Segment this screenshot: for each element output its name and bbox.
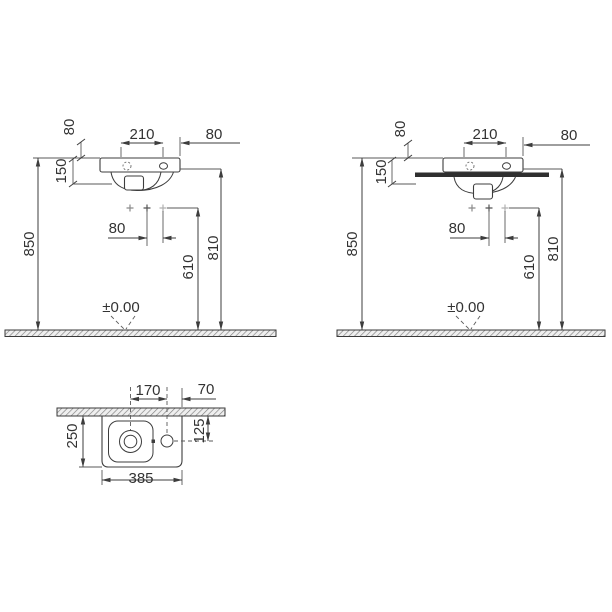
dim-span-label: 210 [472, 126, 497, 143]
basin-rim-profile [443, 158, 523, 172]
basin-rim-profile [100, 158, 180, 172]
spec-drawing-page: 80 150 850 610 810 210 80 80 ±0.00 [0, 0, 612, 612]
dim-upper-clearance-label: 80 [61, 119, 78, 136]
dim-tap-to-edge-label: 70 [198, 381, 215, 398]
floor-hatch-left [5, 330, 276, 337]
dim-basin-height-label: 150 [53, 158, 70, 183]
fixing-cross-icon [127, 205, 134, 212]
countertop-bar [415, 173, 549, 178]
drain-trap [474, 184, 493, 199]
dim-width-label: 385 [128, 470, 153, 487]
floor-hatch-right [337, 330, 605, 337]
plan-view: 170 70 250 125 385 [57, 381, 225, 487]
front-elevation-countertop: 80 150 850 610 810 210 80 80 ±0.00 [337, 121, 605, 337]
dim-fixing-height-label: 810 [205, 235, 222, 260]
dim-hole-spacing-label: 80 [109, 220, 126, 237]
dim-upper-clearance-label: 80 [392, 121, 409, 138]
dim-basin-height-label: 150 [373, 159, 390, 184]
fixing-cross-icon [160, 205, 167, 212]
overflow-mark [152, 440, 156, 444]
dim-holes-height-label: 610 [521, 254, 538, 279]
floor-level-label: ±0.00 [102, 299, 139, 316]
dim-span-label: 210 [129, 126, 154, 143]
fixing-cross-icon [502, 205, 509, 212]
dim-tap-to-edge-label: 80 [561, 127, 578, 144]
dim-holes-height-label: 610 [180, 254, 197, 279]
dim-depth-label: 250 [64, 423, 81, 448]
drain-trap [125, 176, 144, 190]
technical-drawing-canvas: 80 150 850 610 810 210 80 80 ±0.00 [0, 0, 612, 612]
dim-fixing-height-label: 810 [545, 236, 562, 261]
dim-drain-to-tap-label: 170 [135, 382, 160, 399]
wall-hatch [57, 408, 225, 416]
dim-tap-to-edge-label: 80 [206, 126, 223, 143]
dim-tap-setback-label: 125 [191, 418, 208, 443]
dim-rim-height-label: 850 [21, 231, 38, 256]
dim-rim-height-label: 850 [344, 231, 361, 256]
dim-hole-spacing-label: 80 [449, 220, 466, 237]
front-elevation-wall-hung: 80 150 850 610 810 210 80 80 ±0.00 [5, 119, 276, 337]
floor-level-label: ±0.00 [447, 299, 484, 316]
fixing-cross-icon [469, 205, 476, 212]
